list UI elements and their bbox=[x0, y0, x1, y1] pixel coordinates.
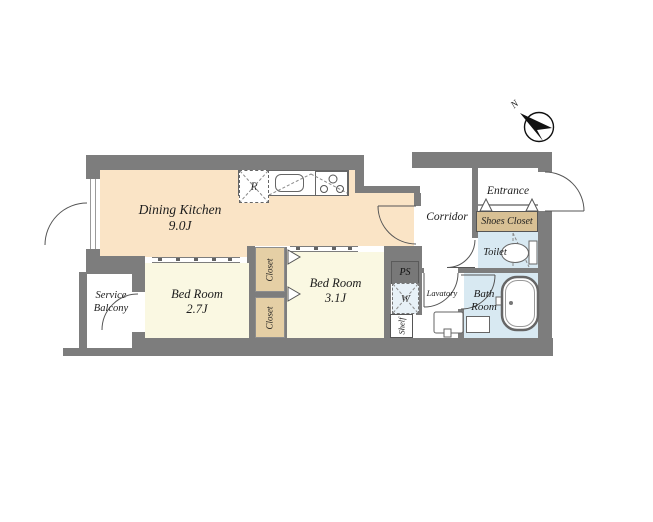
label-bed-room-large: Bed Room 3.1J bbox=[287, 276, 384, 307]
label-toilet: Toilet bbox=[478, 247, 512, 260]
lavatory-sink-icon bbox=[434, 312, 463, 337]
bed-room-small-area: 2.7J bbox=[147, 302, 247, 317]
door-arc-kitchen-corridor bbox=[378, 206, 416, 244]
stove-burners-icon bbox=[321, 175, 344, 193]
refrigerator-cross bbox=[240, 171, 268, 202]
label-dining-kitchen: Dining Kitchen 9.0J bbox=[110, 202, 250, 235]
door-arc-entrance bbox=[545, 172, 584, 211]
label-bed-room-small: Bed Room 2.7J bbox=[147, 287, 247, 318]
floor-plan: Closet Closet Shoes Closet PS W Shelf R bbox=[0, 0, 653, 522]
label-entrance: Entrance bbox=[478, 184, 538, 198]
counter-dash-lines bbox=[269, 174, 347, 195]
label-corridor: Corridor bbox=[416, 210, 478, 224]
compass-icon bbox=[520, 113, 554, 142]
bed-room-large-area: 3.1J bbox=[287, 291, 384, 306]
label-service-balcony: Service Balcony bbox=[82, 290, 140, 316]
bed-room-small-name: Bed Room bbox=[147, 287, 247, 302]
dining-kitchen-area: 9.0J bbox=[110, 218, 250, 234]
plan-overlay bbox=[0, 0, 653, 522]
label-bath-room: Bath Room bbox=[462, 288, 506, 315]
door-arc-toilet bbox=[447, 240, 475, 268]
washer-cross bbox=[393, 284, 418, 313]
bed-room-large-name: Bed Room bbox=[287, 276, 384, 291]
dining-kitchen-name: Dining Kitchen bbox=[110, 202, 250, 218]
door-arc-kitchen-exterior bbox=[45, 203, 87, 245]
label-lavatory: Lavatory bbox=[424, 288, 460, 298]
